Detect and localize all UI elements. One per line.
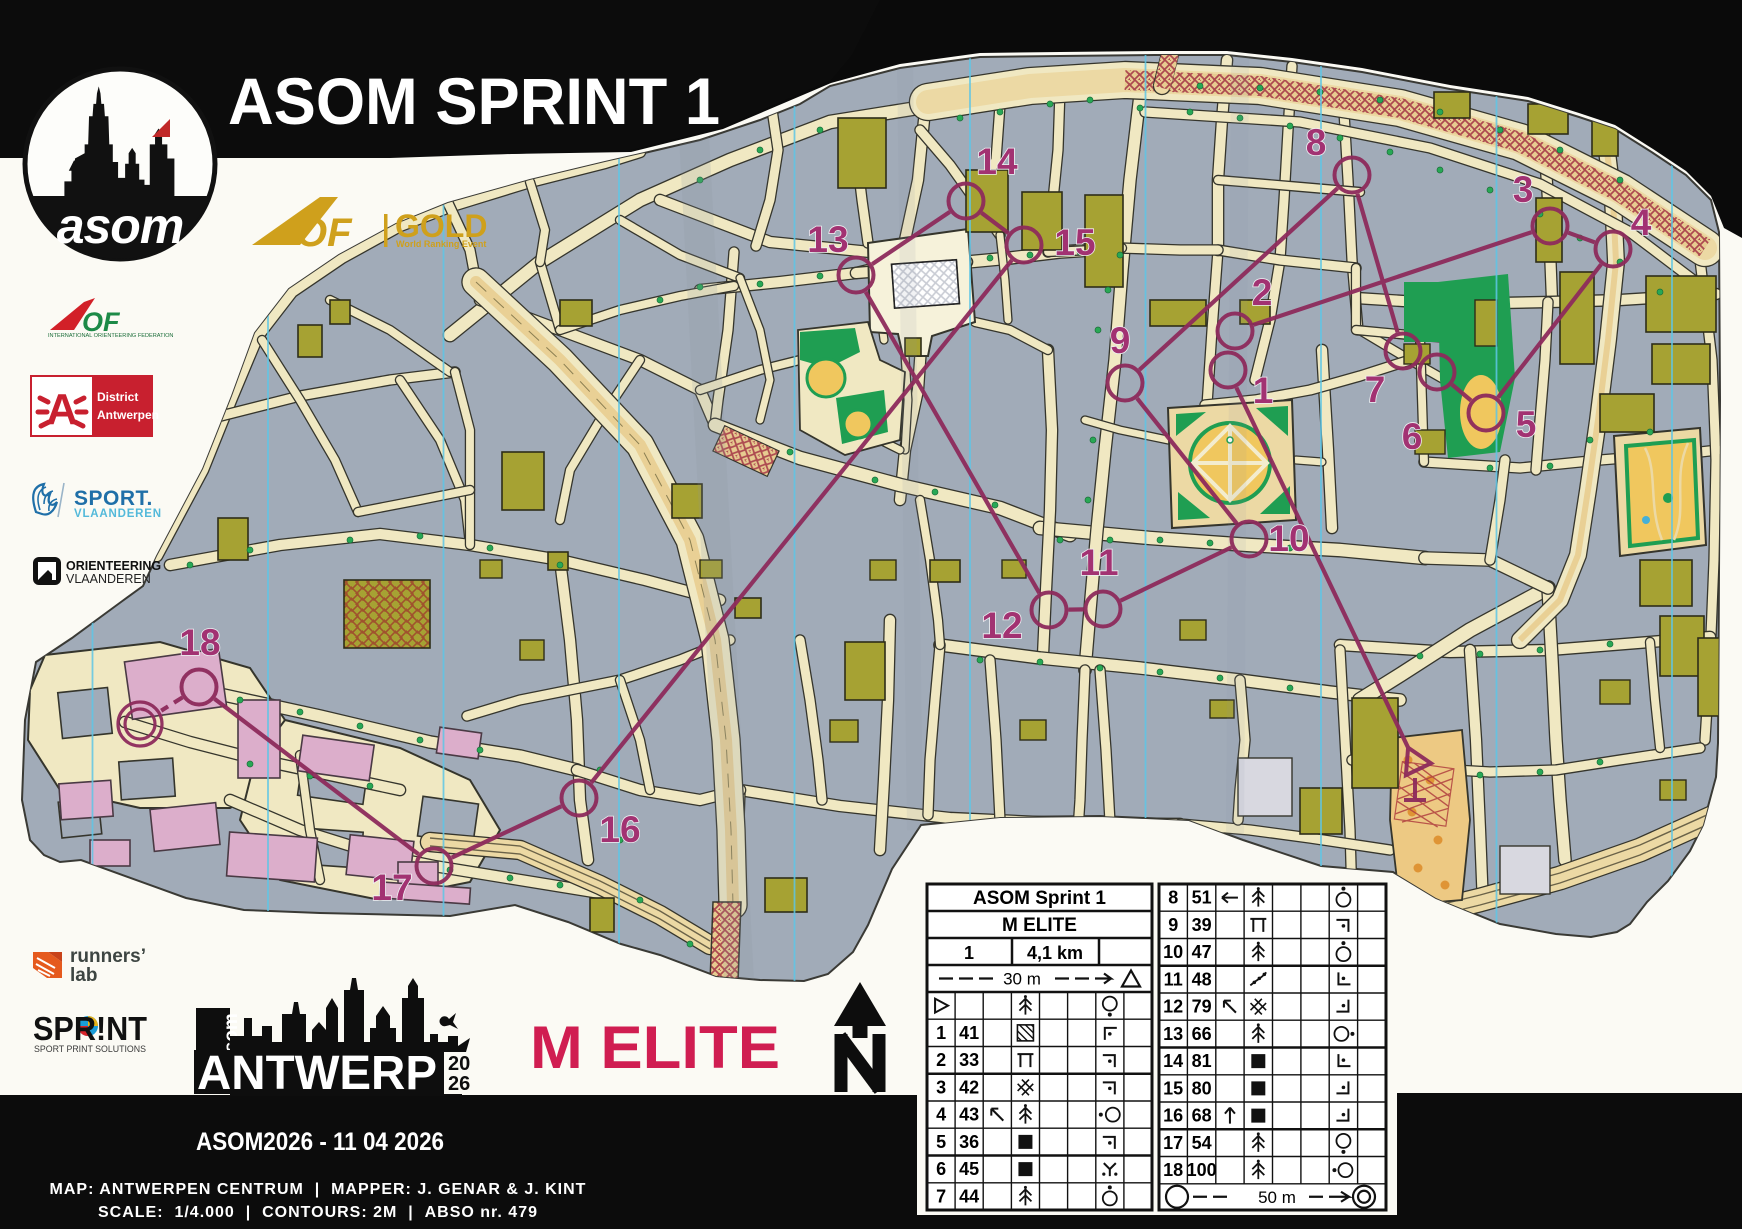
svg-text:1: 1 [964, 943, 974, 963]
svg-text:26: 26 [448, 1073, 470, 1095]
svg-text:4,1 km: 4,1 km [1027, 943, 1083, 963]
svg-text:2: 2 [936, 1050, 946, 1070]
svg-text:INTERNATIONAL ORIENTEERING FED: INTERNATIONAL ORIENTEERING FEDERATION [48, 333, 173, 339]
svg-text:48: 48 [1192, 969, 1212, 989]
svg-text:9: 9 [1168, 915, 1178, 935]
svg-text:11: 11 [1079, 542, 1118, 583]
svg-text:11: 11 [1164, 969, 1183, 989]
svg-text:SPORT PRINT SOLUTIONS: SPORT PRINT SOLUTIONS [34, 1044, 146, 1055]
svg-text:2: 2 [1252, 272, 1273, 313]
svg-text:4: 4 [1631, 202, 1652, 243]
svg-text:79: 79 [1192, 997, 1212, 1017]
svg-text:66: 66 [1192, 1024, 1212, 1044]
svg-text:3: 3 [1513, 169, 1534, 210]
svg-text:VLAANDEREN: VLAANDEREN [66, 572, 151, 586]
svg-text:SCALE: 1/4.000 | CONTOURS:: SCALE: 1/4.000 | CONTOURS: 2M | ABSO nr.… [98, 1204, 538, 1221]
svg-text:1: 1 [1253, 370, 1274, 411]
svg-text:SPR!NT: SPR!NT [33, 1010, 147, 1047]
svg-text:68: 68 [1192, 1106, 1212, 1126]
svg-text:50 m: 50 m [1258, 1188, 1296, 1207]
svg-text:30 m: 30 m [1003, 970, 1041, 989]
svg-text:8: 8 [1306, 122, 1327, 163]
svg-text:6: 6 [1402, 416, 1423, 457]
svg-text:14: 14 [976, 141, 1018, 182]
svg-text:MAP: ANTWERPEN CENTRUM | MAP: MAP: ANTWERPEN CENTRUM | MAPPER: J. GENA… [50, 1181, 587, 1198]
svg-text:ASOM SPRINT 1: ASOM SPRINT 1 [228, 64, 720, 138]
svg-text:33: 33 [959, 1050, 979, 1070]
svg-text:10: 10 [1268, 518, 1309, 559]
svg-text:VLAANDEREN: VLAANDEREN [74, 508, 162, 520]
svg-text:16: 16 [599, 809, 640, 850]
svg-text:13: 13 [1163, 1024, 1183, 1044]
svg-text:80: 80 [1192, 1078, 1212, 1098]
svg-text:4: 4 [936, 1105, 946, 1125]
svg-text:World Ranking Event: World Ranking Event [396, 239, 486, 249]
svg-text:lab: lab [70, 965, 97, 986]
svg-text:20: 20 [448, 1053, 470, 1075]
svg-text:41: 41 [959, 1023, 979, 1043]
svg-text:6: 6 [936, 1159, 946, 1179]
svg-text:15: 15 [1054, 222, 1095, 263]
svg-text:100: 100 [1187, 1160, 1217, 1180]
svg-text:18: 18 [179, 622, 220, 663]
svg-text:18: 18 [1163, 1160, 1183, 1180]
svg-text:SPORT.: SPORT. [74, 487, 153, 510]
svg-text:OF: OF [296, 211, 353, 255]
svg-text:54: 54 [1192, 1133, 1212, 1153]
svg-text:M ELITE: M ELITE [1002, 915, 1077, 936]
svg-text:District: District [97, 390, 138, 404]
svg-text:5: 5 [936, 1132, 946, 1152]
svg-text:51: 51 [1192, 888, 1212, 908]
svg-text:10: 10 [1163, 942, 1183, 962]
svg-text:ASOM2026 - 11 04 2026: ASOM2026 - 11 04 2026 [196, 1128, 444, 1156]
svg-text:8: 8 [1168, 888, 1178, 908]
svg-text:ANTWERP: ANTWERP [197, 1047, 437, 1100]
svg-text:M ELITE: M ELITE [530, 1014, 780, 1081]
svg-text:12: 12 [981, 605, 1022, 646]
svg-text:runners’: runners’ [70, 946, 146, 967]
svg-text:asom: asom [57, 198, 184, 254]
svg-text:36: 36 [959, 1132, 979, 1152]
svg-text:42: 42 [959, 1077, 979, 1097]
svg-text:9: 9 [1110, 320, 1131, 361]
svg-text:ASOM Sprint 1: ASOM Sprint 1 [973, 888, 1106, 909]
svg-text:39: 39 [1192, 915, 1212, 935]
svg-text:81: 81 [1192, 1051, 1212, 1071]
svg-text:A: A [46, 385, 78, 434]
svg-text:ORIENTEERING: ORIENTEERING [66, 559, 161, 573]
svg-text:5: 5 [1516, 404, 1537, 445]
svg-text:13: 13 [807, 219, 848, 260]
svg-text:3: 3 [936, 1077, 946, 1097]
svg-text:16: 16 [1163, 1106, 1183, 1126]
svg-text:43: 43 [959, 1105, 979, 1125]
svg-text:17: 17 [371, 867, 412, 908]
svg-text:44: 44 [959, 1186, 979, 1206]
svg-text:1: 1 [936, 1023, 946, 1043]
svg-text:17: 17 [1163, 1133, 1183, 1153]
svg-text:7: 7 [1365, 369, 1386, 410]
svg-text:7: 7 [936, 1186, 946, 1206]
svg-text:45: 45 [959, 1159, 979, 1179]
svg-text:14: 14 [1163, 1051, 1183, 1071]
svg-text:15: 15 [1163, 1078, 1183, 1098]
svg-text:47: 47 [1192, 942, 1212, 962]
svg-text:Antwerpen: Antwerpen [97, 408, 159, 422]
svg-text:12: 12 [1163, 997, 1183, 1017]
